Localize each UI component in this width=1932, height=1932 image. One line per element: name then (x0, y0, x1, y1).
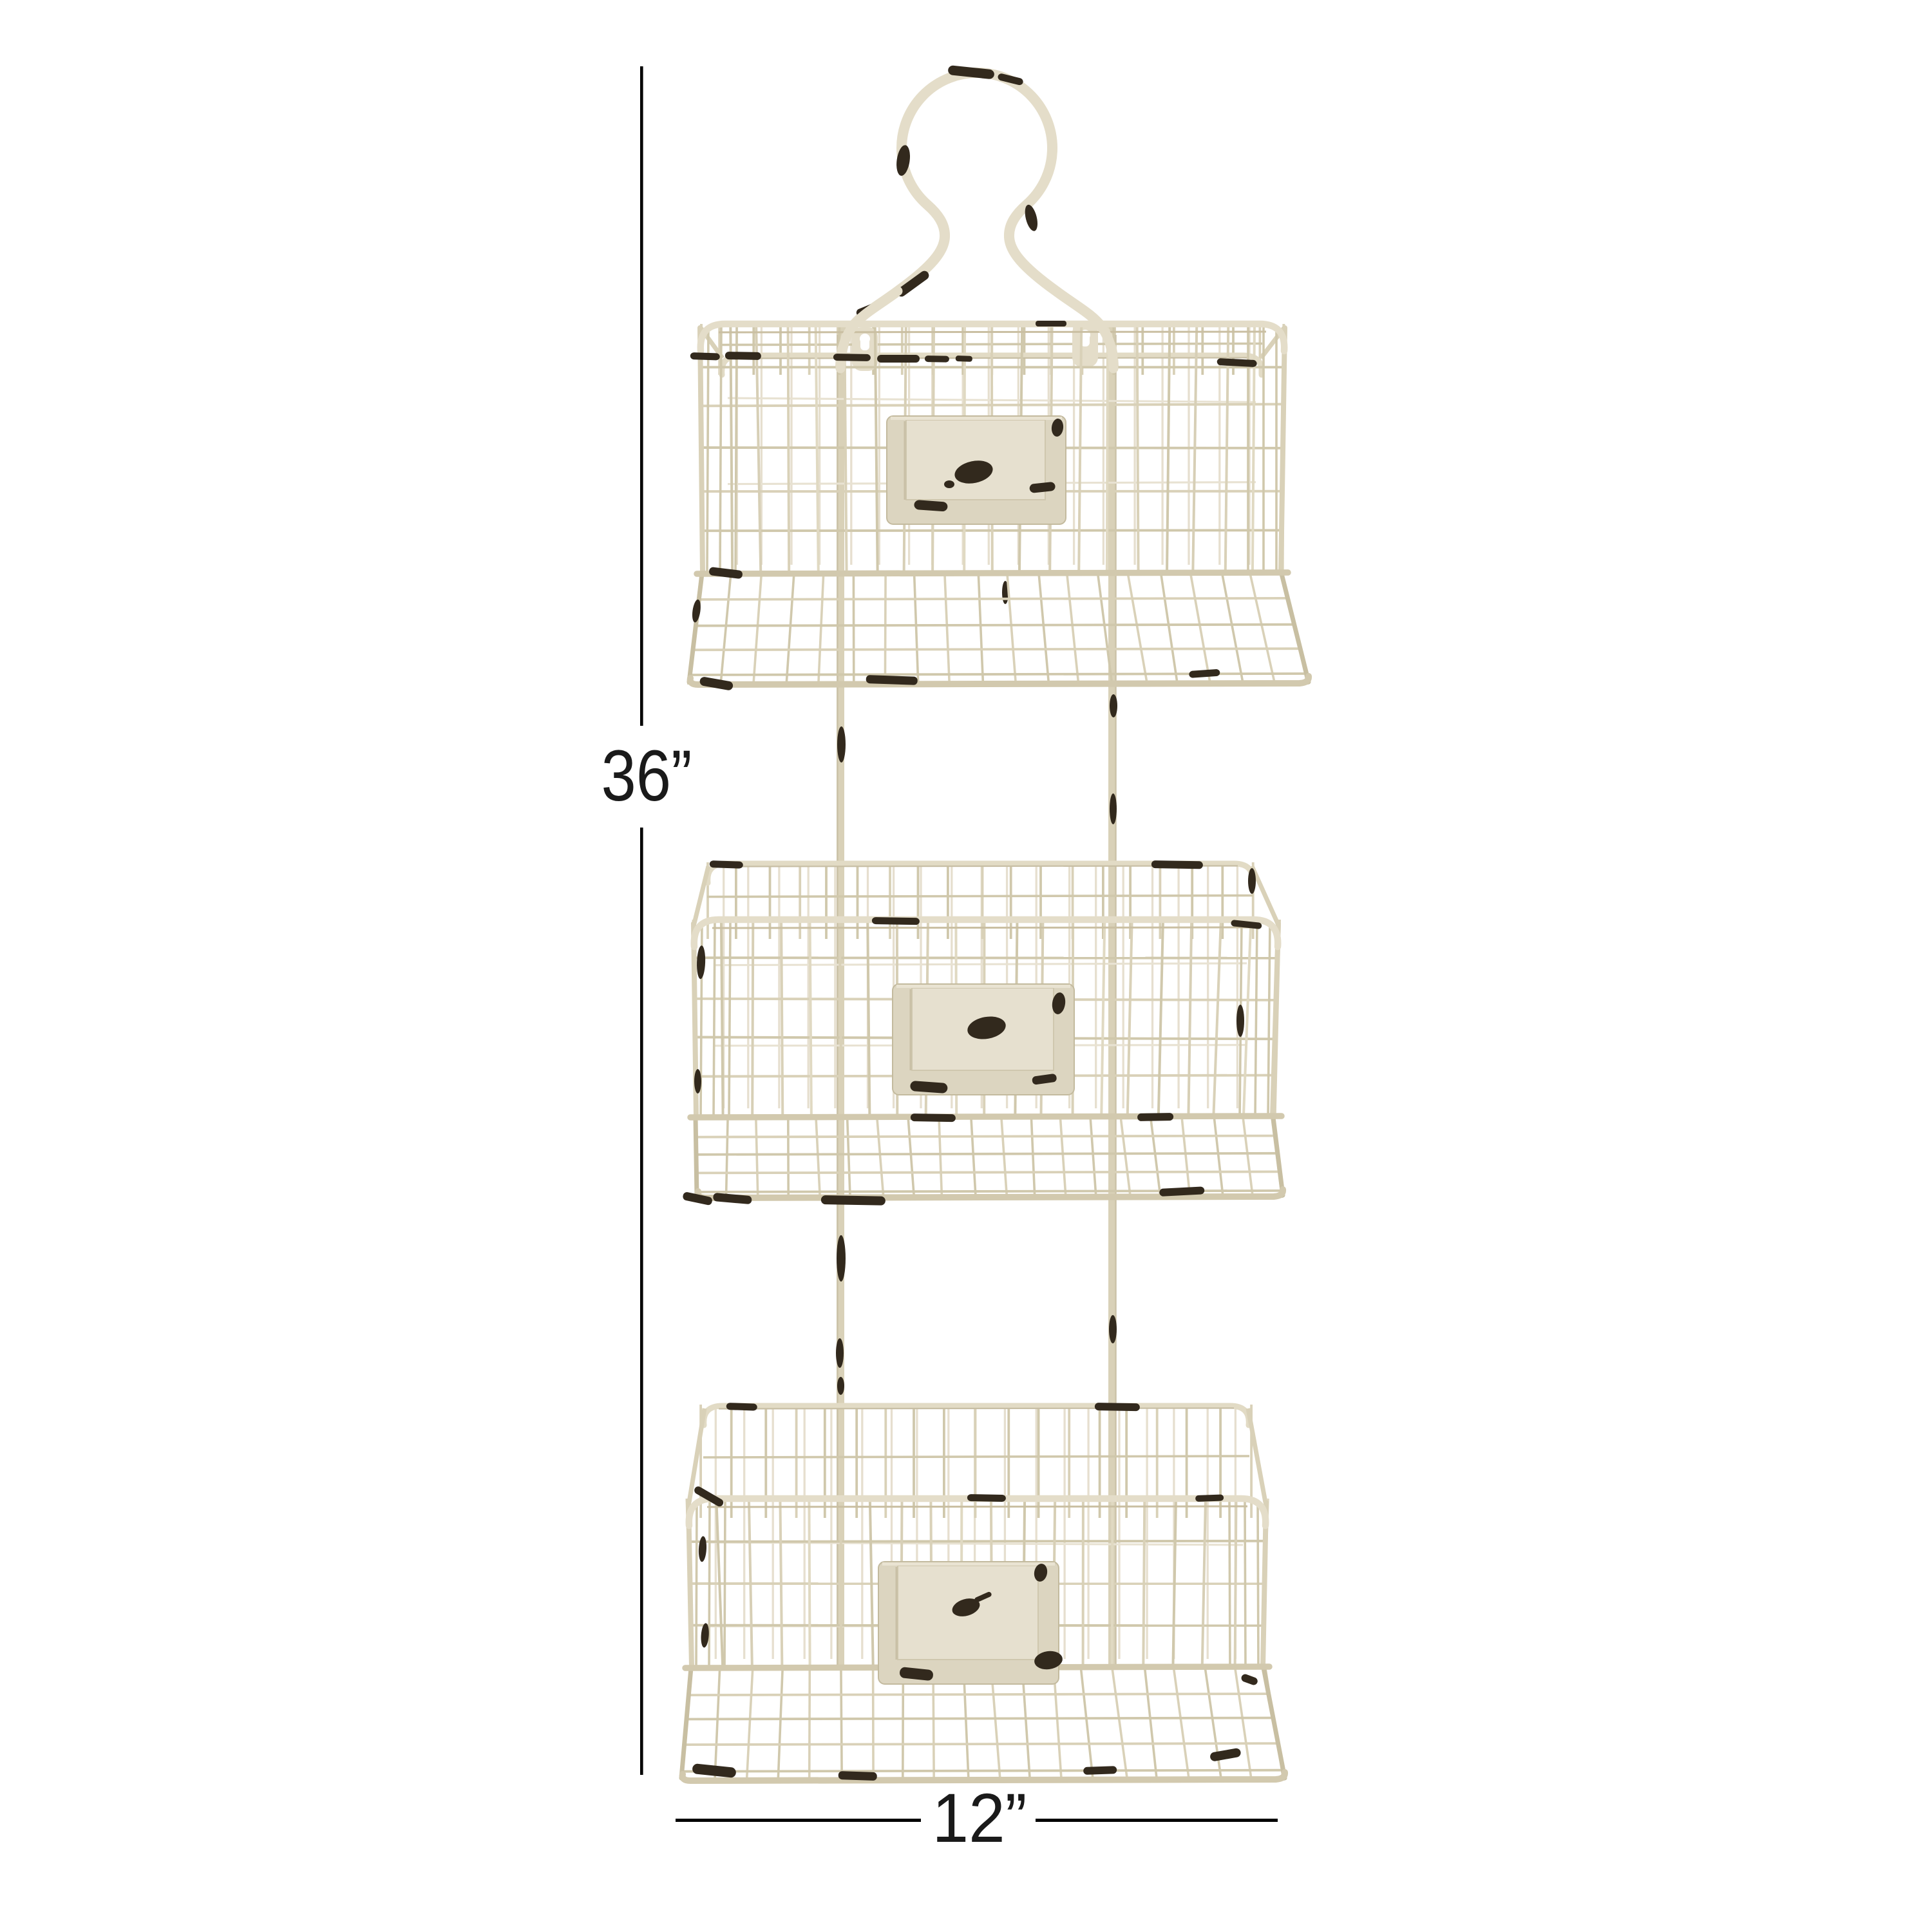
svg-text:36”: 36” (601, 735, 692, 816)
svg-text:12”: 12” (933, 1779, 1027, 1857)
